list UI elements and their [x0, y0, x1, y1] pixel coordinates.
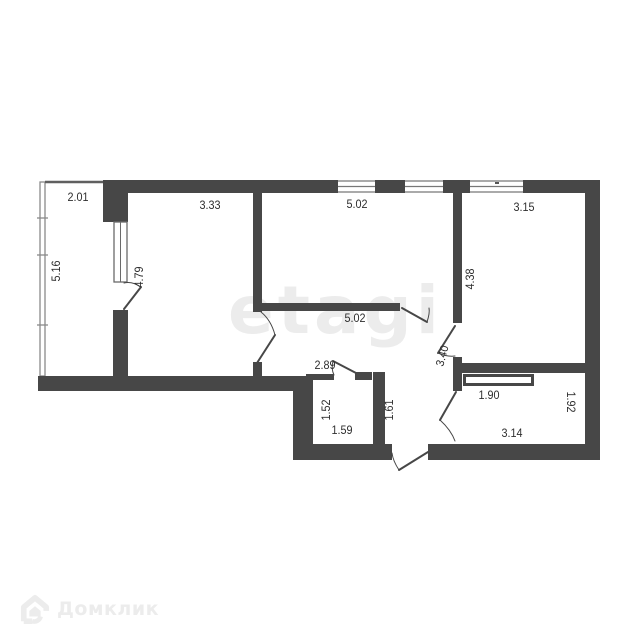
door-hall: [440, 392, 456, 441]
wall-balcony-corner: [103, 180, 128, 222]
dim-room333-width: 3.33: [199, 200, 220, 212]
floorplan-page: etagi: [0, 0, 640, 640]
dim-balcony-width: 2.01: [67, 192, 88, 204]
balcony-glazing: [37, 182, 103, 376]
wall-room333-right-post: [253, 362, 262, 378]
dim-hall-width: 1.90: [478, 390, 499, 402]
dim-bathroom-diag: 2.89: [314, 360, 335, 372]
dim-room333-length: 4.79: [134, 266, 146, 287]
dim-livingroom-width: 5.02: [346, 199, 367, 211]
dim-vestibule-length: 1.61: [384, 399, 396, 420]
window-livingroom-1: [338, 180, 375, 193]
wall-room315-bottom: [462, 363, 585, 373]
dim-room315-length: 4.38: [465, 268, 477, 289]
domklik-wordmark: Домклик: [57, 598, 159, 620]
dim-bathroom-width2: 1.59: [331, 425, 352, 437]
wall-room315-left-upper: [453, 193, 462, 323]
dim-bathroom-width: 1.52: [321, 399, 333, 420]
wall-bathroom-post: [355, 372, 372, 380]
wall-bottom-left: [38, 376, 297, 391]
wall-corridor-top: [253, 303, 400, 311]
domklik-watermark: Домклик: [20, 594, 159, 624]
dim-hall-width2: 3.14: [501, 428, 522, 440]
window-balcony-door: [114, 222, 127, 282]
house-icon: [20, 594, 50, 624]
dim-balcony-length: 5.16: [51, 260, 63, 281]
window-room315: [470, 180, 523, 193]
door-bathroom: [332, 361, 356, 375]
wall-right: [585, 180, 600, 460]
wall-room315-left-lower: [453, 357, 462, 391]
door-room333: [257, 312, 275, 363]
wall-balcony-lower: [113, 310, 128, 378]
wall-bathroom-left: [308, 376, 313, 444]
door-entrance: [392, 452, 428, 470]
dim-corridor-length: 5.02: [344, 313, 365, 325]
window-livingroom-2: [405, 180, 443, 193]
duct-box: [465, 376, 533, 385]
wall-bottom-right: [428, 444, 600, 460]
wall-room333-right-upper: [253, 193, 262, 312]
floor-plan-drawing: [0, 0, 640, 640]
door-livingroom: [402, 308, 429, 322]
dim-room315-width: 3.15: [513, 202, 534, 214]
dim-hall-length: 1.92: [564, 391, 576, 412]
